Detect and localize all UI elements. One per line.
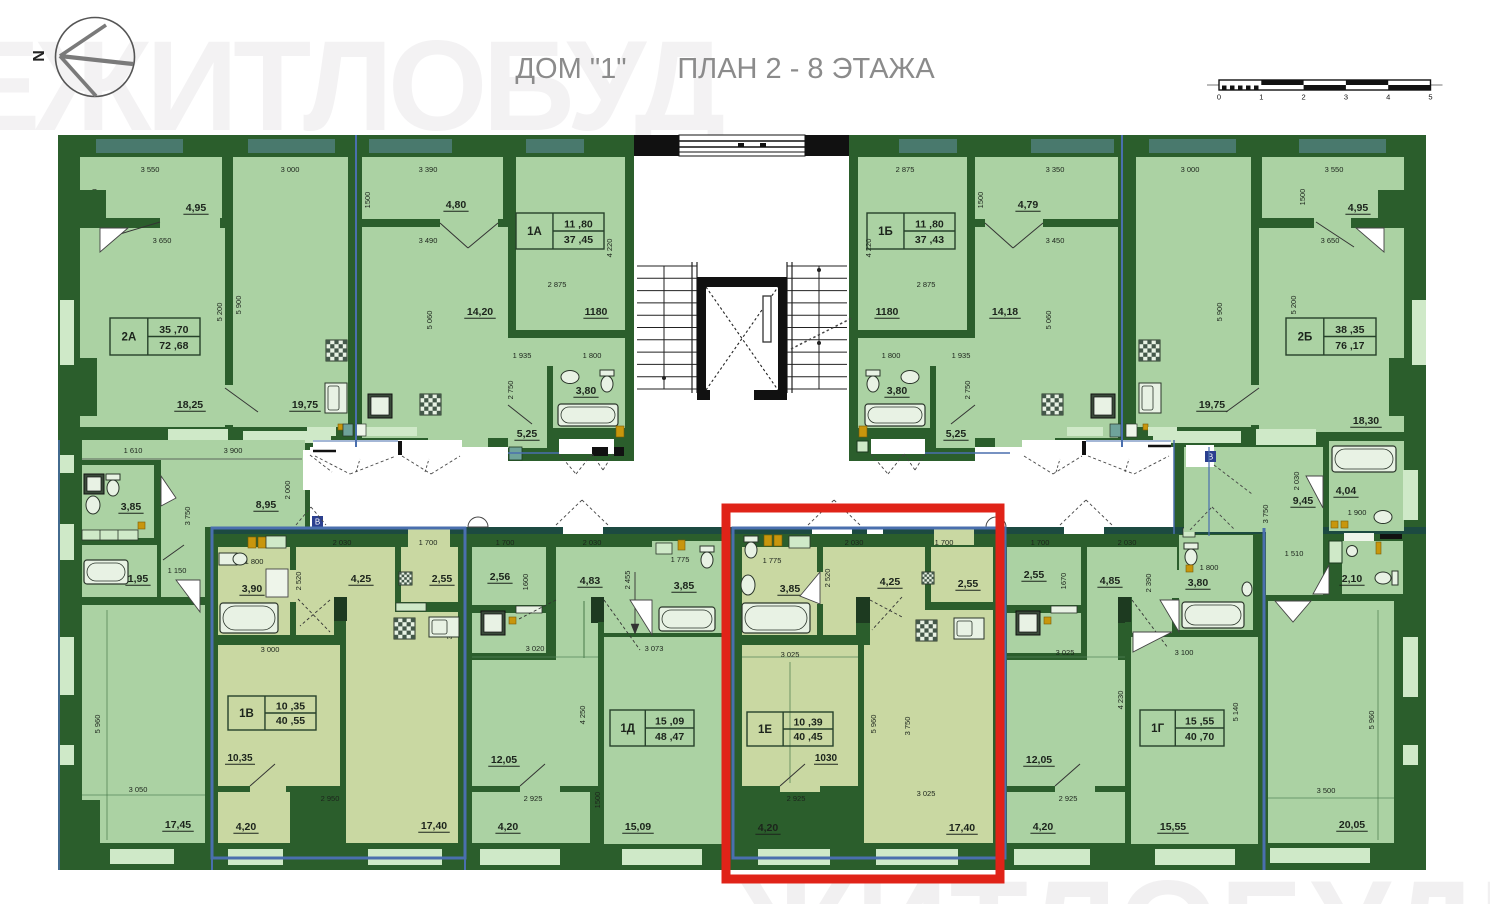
svg-text:4,25: 4,25: [880, 576, 901, 588]
svg-text:3 750: 3 750: [1261, 505, 1270, 524]
svg-text:3 025: 3 025: [1056, 648, 1075, 657]
svg-text:3,80: 3,80: [576, 385, 597, 397]
svg-text:76 ,17: 76 ,17: [1335, 340, 1364, 352]
svg-text:2 520: 2 520: [294, 572, 303, 591]
svg-text:1А: 1А: [527, 226, 542, 238]
svg-text:3 550: 3 550: [1325, 165, 1344, 174]
svg-text:2 925: 2 925: [524, 794, 543, 803]
svg-text:0: 0: [1217, 93, 1221, 102]
svg-text:1500: 1500: [1298, 189, 1307, 206]
svg-text:5 200: 5 200: [215, 303, 224, 322]
svg-text:1180: 1180: [876, 306, 899, 318]
svg-text:12,05: 12,05: [491, 754, 517, 766]
svg-text:15 ,55: 15 ,55: [1185, 716, 1214, 728]
svg-text:15,55: 15,55: [1160, 821, 1186, 833]
svg-text:17,40: 17,40: [421, 820, 447, 832]
svg-text:1 935: 1 935: [952, 351, 971, 360]
svg-text:ДОМ "1": ДОМ "1": [515, 53, 626, 85]
svg-text:3 000: 3 000: [261, 645, 280, 654]
svg-text:1600: 1600: [521, 574, 530, 591]
svg-text:9,45: 9,45: [1293, 495, 1314, 507]
svg-text:2: 2: [1302, 93, 1306, 102]
svg-text:15 ,09: 15 ,09: [655, 716, 684, 728]
svg-text:5 960: 5 960: [869, 715, 878, 734]
svg-text:3 350: 3 350: [1046, 165, 1065, 174]
svg-text:3 073: 3 073: [645, 644, 664, 653]
svg-text:2 030: 2 030: [1292, 472, 1301, 491]
svg-text:5 200: 5 200: [1289, 296, 1298, 315]
svg-text:2 000: 2 000: [283, 481, 292, 500]
svg-text:1500: 1500: [593, 792, 602, 809]
svg-text:3,85: 3,85: [780, 583, 801, 595]
svg-text:5 900: 5 900: [1215, 303, 1224, 322]
svg-text:1 935: 1 935: [513, 351, 532, 360]
svg-text:2 455: 2 455: [623, 571, 632, 590]
svg-text:1,95: 1,95: [128, 573, 149, 585]
svg-text:4,80: 4,80: [446, 199, 467, 211]
svg-text:2 030: 2 030: [845, 538, 864, 547]
svg-text:17,45: 17,45: [165, 819, 191, 831]
svg-text:4,25: 4,25: [351, 573, 372, 585]
svg-text:2 925: 2 925: [787, 794, 806, 803]
svg-text:1500: 1500: [363, 192, 372, 209]
svg-text:1 775: 1 775: [763, 556, 782, 565]
svg-text:3 450: 3 450: [1046, 236, 1065, 245]
svg-text:3 000: 3 000: [281, 165, 300, 174]
svg-text:4,20: 4,20: [758, 822, 779, 834]
svg-text:19,75: 19,75: [1199, 399, 1225, 411]
svg-text:1 610: 1 610: [124, 446, 143, 455]
svg-text:40 ,70: 40 ,70: [1185, 731, 1214, 743]
svg-text:1 510: 1 510: [1285, 549, 1304, 558]
svg-text:3 500: 3 500: [1317, 786, 1336, 795]
svg-text:18,25: 18,25: [177, 399, 203, 411]
svg-text:4,20: 4,20: [236, 821, 257, 833]
svg-text:2,56: 2,56: [490, 571, 511, 583]
svg-text:3 100: 3 100: [1175, 648, 1194, 657]
svg-text:1Г: 1Г: [1151, 723, 1164, 735]
svg-text:1 800: 1 800: [882, 351, 901, 360]
svg-text:4 230: 4 230: [1116, 691, 1125, 710]
svg-text:ПЛАН 2 - 8 ЭТАЖА: ПЛАН 2 - 8 ЭТАЖА: [677, 53, 935, 85]
svg-text:2,10: 2,10: [1342, 573, 1363, 585]
svg-text:3,85: 3,85: [674, 580, 695, 592]
svg-text:72 ,68: 72 ,68: [159, 340, 188, 352]
svg-text:5 960: 5 960: [93, 715, 102, 734]
svg-text:38 ,35: 38 ,35: [1335, 324, 1364, 336]
svg-text:3,90: 3,90: [242, 583, 263, 595]
svg-text:40 ,45: 40 ,45: [793, 731, 822, 743]
svg-text:14,18: 14,18: [992, 306, 1018, 318]
svg-text:4 250: 4 250: [578, 706, 587, 725]
svg-text:3 650: 3 650: [1321, 236, 1340, 245]
svg-text:2,55: 2,55: [958, 578, 979, 590]
svg-text:4,20: 4,20: [1033, 821, 1054, 833]
svg-text:3 490: 3 490: [419, 236, 438, 245]
svg-text:3 750: 3 750: [183, 507, 192, 526]
svg-text:1В: 1В: [239, 708, 254, 720]
svg-text:35 ,70: 35 ,70: [159, 324, 188, 336]
svg-text:4,04: 4,04: [1336, 485, 1357, 497]
svg-text:2 030: 2 030: [1118, 538, 1137, 547]
svg-text:1 900: 1 900: [1348, 508, 1367, 517]
svg-text:40 ,55: 40 ,55: [276, 715, 305, 727]
svg-text:1 150: 1 150: [168, 566, 187, 575]
svg-text:11 ,80: 11 ,80: [915, 219, 944, 231]
svg-text:3 900: 3 900: [224, 446, 243, 455]
svg-text:4,85: 4,85: [1100, 575, 1121, 587]
svg-text:3 050: 3 050: [129, 785, 148, 794]
svg-text:5,25: 5,25: [517, 428, 538, 440]
svg-text:2,55: 2,55: [432, 573, 453, 585]
svg-text:3,80: 3,80: [1188, 577, 1209, 589]
svg-text:2 750: 2 750: [963, 381, 972, 400]
svg-text:5 960: 5 960: [1367, 711, 1376, 730]
svg-text:1Б: 1Б: [878, 226, 893, 238]
svg-text:5 060: 5 060: [425, 311, 434, 330]
svg-text:5,25: 5,25: [946, 428, 967, 440]
svg-text:1Е: 1Е: [758, 724, 772, 736]
svg-text:2 950: 2 950: [321, 794, 340, 803]
svg-text:14,20: 14,20: [467, 306, 493, 318]
svg-text:1: 1: [1259, 93, 1263, 102]
svg-text:2 875: 2 875: [548, 280, 567, 289]
svg-text:18,30: 18,30: [1353, 415, 1379, 427]
svg-text:1 700: 1 700: [419, 538, 438, 547]
svg-text:10 ,39: 10 ,39: [793, 717, 822, 729]
svg-text:1180: 1180: [585, 306, 608, 318]
svg-text:2А: 2А: [122, 332, 137, 344]
svg-text:В: В: [315, 518, 320, 527]
svg-text:10 ,35: 10 ,35: [276, 701, 305, 713]
svg-text:5 140: 5 140: [1231, 703, 1240, 722]
svg-text:3,85: 3,85: [121, 501, 142, 513]
svg-text:19,75: 19,75: [292, 399, 318, 411]
svg-text:N: N: [31, 50, 48, 62]
svg-text:37 ,43: 37 ,43: [915, 234, 944, 246]
svg-text:3 025: 3 025: [917, 789, 936, 798]
svg-text:2Б: 2Б: [1298, 332, 1313, 344]
svg-text:3 025: 3 025: [781, 650, 800, 659]
svg-text:2,55: 2,55: [1024, 569, 1045, 581]
svg-text:2 750: 2 750: [506, 381, 515, 400]
svg-text:15,09: 15,09: [625, 821, 651, 833]
svg-text:4,79: 4,79: [1018, 199, 1039, 211]
svg-text:2 875: 2 875: [896, 165, 915, 174]
svg-text:1500: 1500: [976, 192, 985, 209]
svg-text:17,40: 17,40: [949, 822, 975, 834]
svg-text:3 000: 3 000: [1181, 165, 1200, 174]
svg-text:1Д: 1Д: [620, 723, 635, 735]
svg-text:12,05: 12,05: [1026, 754, 1052, 766]
svg-text:2 030: 2 030: [333, 538, 352, 547]
svg-text:48 ,47: 48 ,47: [655, 731, 684, 743]
svg-text:4: 4: [1386, 93, 1390, 102]
svg-text:11 ,80: 11 ,80: [564, 219, 593, 231]
svg-text:4,20: 4,20: [498, 821, 519, 833]
svg-text:1670: 1670: [1059, 573, 1068, 590]
svg-text:1 800: 1 800: [1200, 563, 1219, 572]
svg-text:1 800: 1 800: [583, 351, 602, 360]
svg-text:1 700: 1 700: [496, 538, 515, 547]
svg-text:4 220: 4 220: [864, 239, 873, 258]
svg-text:5 900: 5 900: [234, 296, 243, 315]
svg-text:3 020: 3 020: [526, 644, 545, 653]
svg-text:1030: 1030: [815, 753, 838, 764]
svg-text:2 875: 2 875: [917, 280, 936, 289]
svg-text:4,95: 4,95: [186, 202, 207, 214]
svg-text:1 775: 1 775: [671, 555, 690, 564]
svg-text:3 550: 3 550: [141, 165, 160, 174]
svg-text:4,83: 4,83: [580, 575, 601, 587]
svg-text:2 520: 2 520: [823, 569, 832, 588]
svg-text:1 700: 1 700: [1031, 538, 1050, 547]
svg-text:4 220: 4 220: [605, 239, 614, 258]
svg-text:2 925: 2 925: [1059, 794, 1078, 803]
svg-text:2 390: 2 390: [1144, 574, 1153, 593]
svg-text:10,35: 10,35: [227, 753, 252, 764]
svg-text:37 ,45: 37 ,45: [564, 234, 593, 246]
svg-text:2 030: 2 030: [583, 538, 602, 547]
svg-text:5: 5: [1428, 93, 1432, 102]
svg-text:20,05: 20,05: [1339, 819, 1365, 831]
svg-text:5 060: 5 060: [1044, 311, 1053, 330]
svg-text:3 750: 3 750: [903, 717, 912, 736]
svg-text:3 390: 3 390: [419, 165, 438, 174]
svg-text:3 650: 3 650: [153, 236, 172, 245]
svg-text:3: 3: [1344, 93, 1348, 102]
svg-text:4,95: 4,95: [1348, 202, 1369, 214]
svg-text:1 700: 1 700: [935, 538, 954, 547]
svg-text:8,95: 8,95: [256, 499, 277, 511]
svg-text:3,80: 3,80: [887, 385, 908, 397]
